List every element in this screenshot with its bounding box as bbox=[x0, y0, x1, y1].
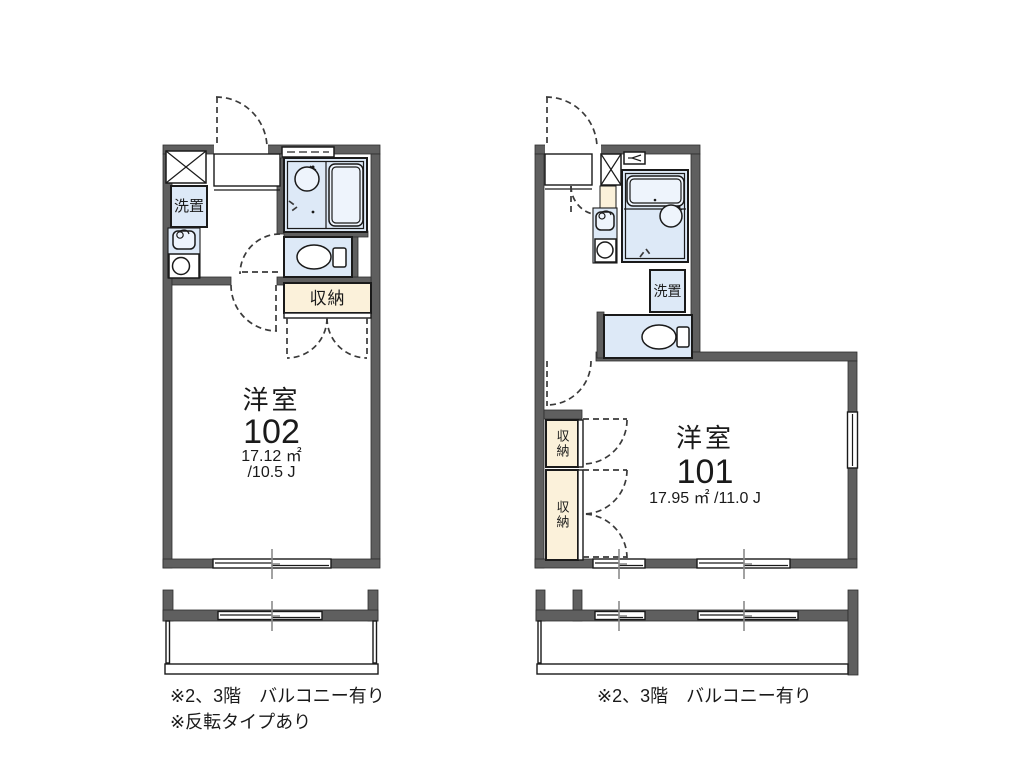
balcony-railing bbox=[537, 664, 848, 674]
note-balcony-101: ※2、3階 バルコニー有り bbox=[597, 686, 857, 706]
shoe-box bbox=[600, 186, 616, 208]
main-window bbox=[697, 549, 790, 579]
vent-box-icon bbox=[624, 152, 645, 164]
room-number-102: 102 bbox=[163, 414, 380, 450]
floorplan-canvas: 洗置 収納 洋室 102 17.12 ㎡ /10.5 J ※2、3階 バルコニー… bbox=[0, 0, 1016, 772]
room-area-m2-102: 17.12 ㎡ bbox=[163, 448, 380, 465]
washing-machine-pan-icon bbox=[166, 151, 206, 183]
toilet-icon bbox=[642, 325, 676, 349]
bathzone-door-swing bbox=[240, 234, 280, 274]
storage-label-lower: 収納 bbox=[546, 470, 578, 560]
room-door-swing bbox=[547, 361, 591, 406]
kitchen-unit bbox=[593, 208, 617, 263]
storage-label-upper: 収納 bbox=[546, 420, 578, 467]
genkan-step bbox=[545, 154, 592, 189]
kitchen-unit bbox=[168, 228, 200, 278]
main-window bbox=[213, 549, 331, 579]
storage-label: 収納 bbox=[284, 283, 371, 313]
bathtub-icon bbox=[329, 164, 363, 226]
genkan-step bbox=[214, 154, 280, 190]
balcony-101 bbox=[536, 590, 858, 675]
toilet-room bbox=[604, 315, 692, 358]
bathroom bbox=[622, 170, 688, 262]
room-area-101: 17.95 ㎡ /11.0 J bbox=[605, 490, 805, 507]
hall-door-swing bbox=[231, 285, 277, 331]
laundry-label: 洗置 bbox=[171, 186, 207, 227]
room-number-101: 101 bbox=[625, 454, 785, 490]
entry-door-swing bbox=[546, 97, 597, 148]
side-window bbox=[848, 412, 858, 468]
entry-door-swing bbox=[216, 97, 267, 148]
floorplan-linework bbox=[0, 0, 1016, 772]
laundry-label: 洗置 bbox=[650, 270, 685, 312]
note-balcony-102: ※2、3階 バルコニー有り bbox=[170, 686, 430, 706]
toilet-icon bbox=[297, 245, 331, 269]
room-type-102: 洋室 bbox=[163, 386, 380, 414]
note-mirrored-102: ※反転タイプあり bbox=[170, 712, 430, 732]
shelf-bar bbox=[282, 147, 334, 157]
toilet-room bbox=[284, 237, 352, 277]
washing-machine-pan-icon bbox=[601, 154, 621, 185]
balcony-102 bbox=[163, 590, 378, 674]
small-window bbox=[593, 549, 645, 579]
bathroom bbox=[284, 158, 367, 232]
bathtub-icon bbox=[627, 176, 684, 206]
room-area-jo-102: /10.5 J bbox=[163, 464, 380, 481]
unit-101-structure bbox=[535, 97, 858, 675]
washbasin-icon bbox=[295, 167, 319, 191]
balcony-railing bbox=[165, 664, 378, 674]
room-type-101: 洋室 bbox=[625, 424, 785, 452]
